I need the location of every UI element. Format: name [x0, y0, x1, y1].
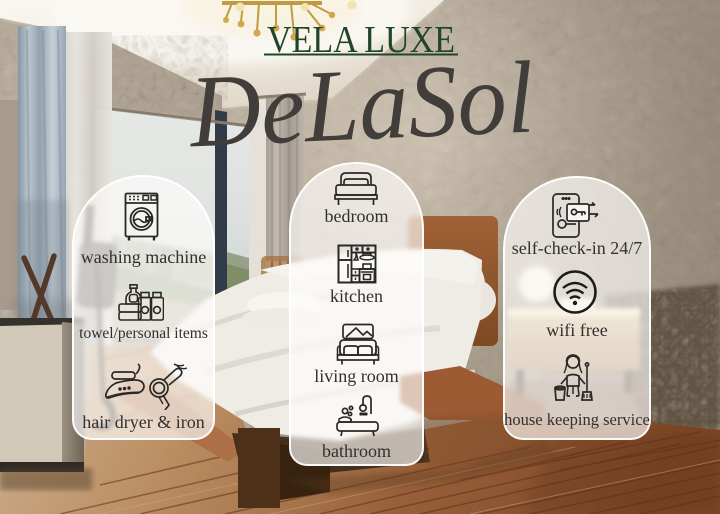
svg-text:DeLaSol: DeLaSol: [186, 40, 537, 169]
